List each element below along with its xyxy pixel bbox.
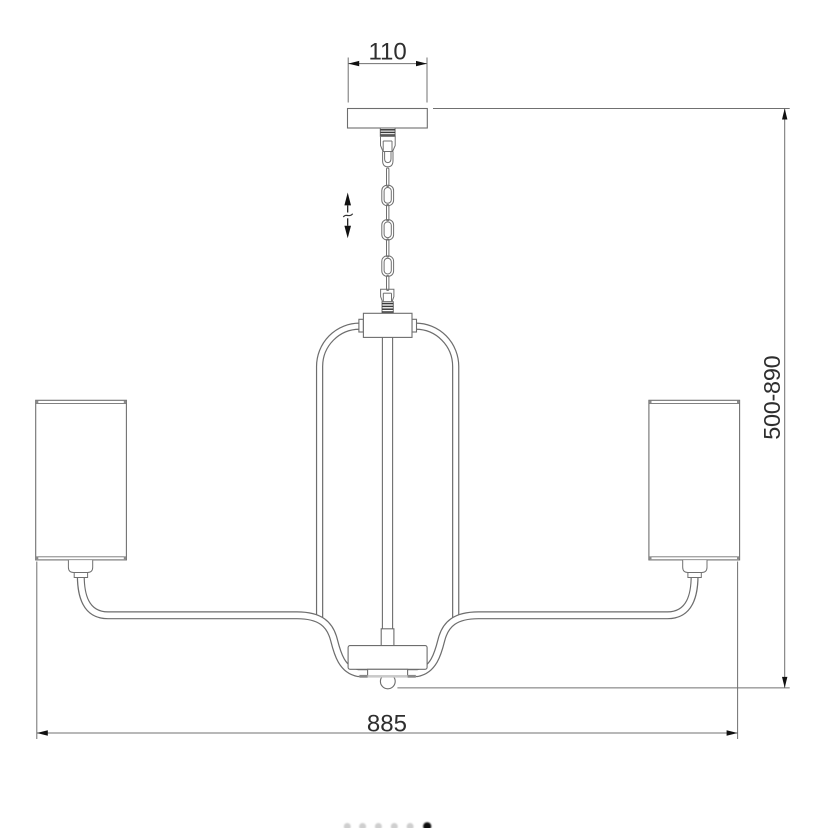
svg-text:110: 110 (368, 39, 406, 66)
svg-text:885: 885 (367, 711, 407, 738)
svg-text:500-890: 500-890 (759, 355, 785, 439)
